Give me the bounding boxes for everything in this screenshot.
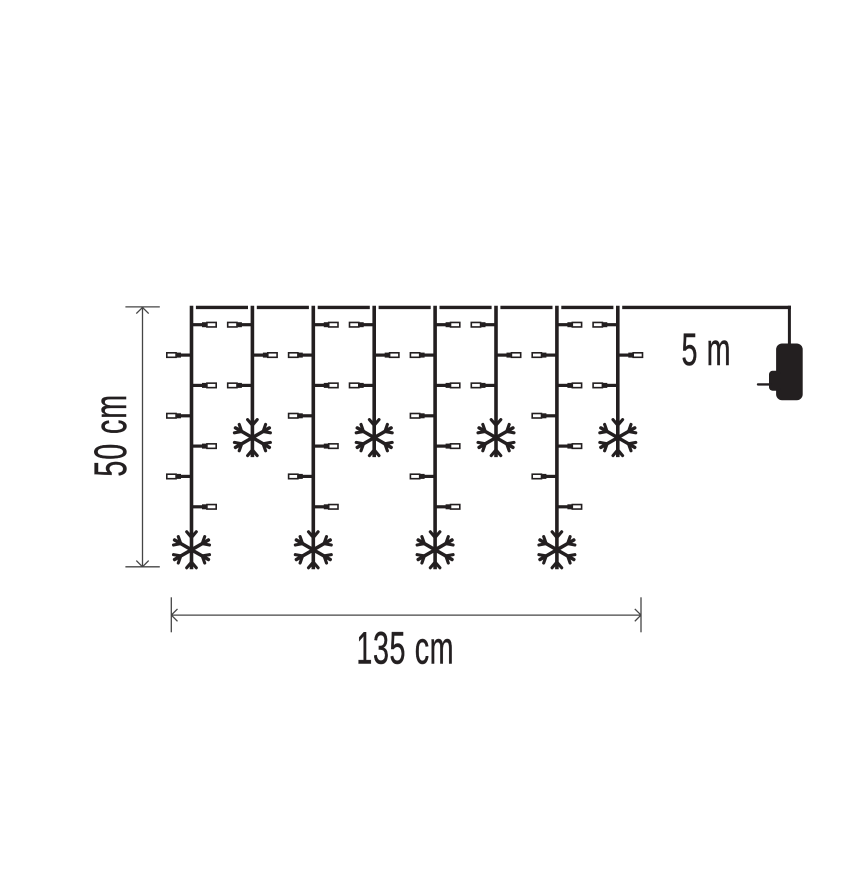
svg-text:5 m: 5 m [681,325,731,375]
svg-text:135 cm: 135 cm [356,624,454,674]
svg-text:50 cm: 50 cm [86,394,136,477]
